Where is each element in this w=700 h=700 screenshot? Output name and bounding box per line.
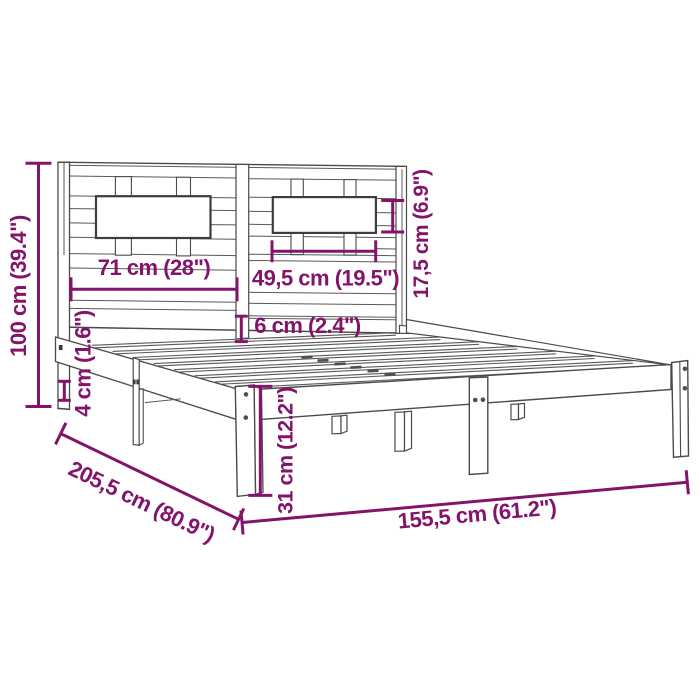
svg-text:49,5 cm (19.5"): 49,5 cm (19.5") [252, 265, 399, 290]
svg-text:6 cm (2.4"): 6 cm (2.4") [254, 313, 361, 338]
svg-text:71 cm (28"): 71 cm (28") [98, 255, 211, 280]
svg-text:17,5 cm (6.9"): 17,5 cm (6.9") [410, 169, 433, 298]
svg-text:4 cm (1.6"): 4 cm (1.6") [71, 310, 96, 417]
svg-text:100 cm (39.4"): 100 cm (39.4") [6, 215, 31, 357]
svg-text:205,5 cm (80.9"): 205,5 cm (80.9") [65, 456, 219, 548]
svg-text:31 cm (12.2"): 31 cm (12.2") [274, 387, 298, 514]
